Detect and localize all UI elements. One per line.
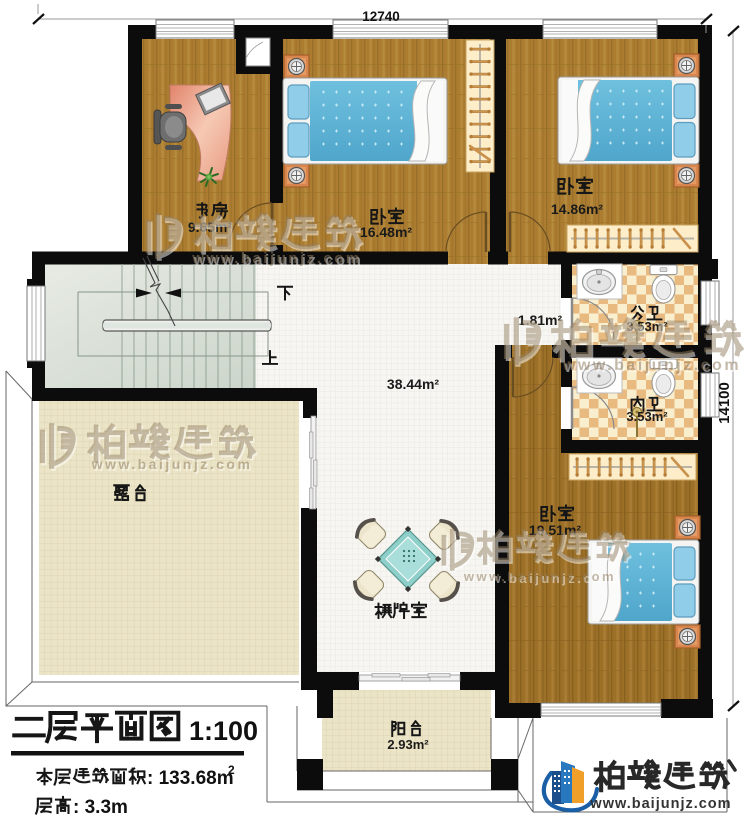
svg-text:www.baijunjz.com: www.baijunjz.com [191, 250, 361, 267]
svg-text:38.44m²: 38.44m² [387, 376, 439, 392]
svg-text:12740: 12740 [362, 9, 400, 24]
svg-text:www.baijunjz.com: www.baijunjz.com [562, 357, 741, 374]
svg-text:1:100: 1:100 [189, 716, 258, 746]
svg-text:: 3.3m: : 3.3m [73, 797, 128, 818]
svg-text:16.48m²: 16.48m² [360, 224, 412, 240]
svg-text:3.53m²: 3.53m² [626, 409, 668, 424]
svg-text:: 133.68m: : 133.68m [147, 768, 234, 789]
svg-text:2: 2 [228, 763, 235, 777]
svg-text:2.93m²: 2.93m² [387, 737, 429, 752]
svg-text:www.baijunjz.com: www.baijunjz.com [91, 456, 253, 472]
svg-text:www.baijunjz.com: www.baijunjz.com [463, 569, 616, 584]
svg-text:14100: 14100 [716, 382, 733, 424]
svg-text:www.baijunjz.com: www.baijunjz.com [589, 796, 731, 812]
svg-text:14.86m²: 14.86m² [551, 201, 603, 217]
